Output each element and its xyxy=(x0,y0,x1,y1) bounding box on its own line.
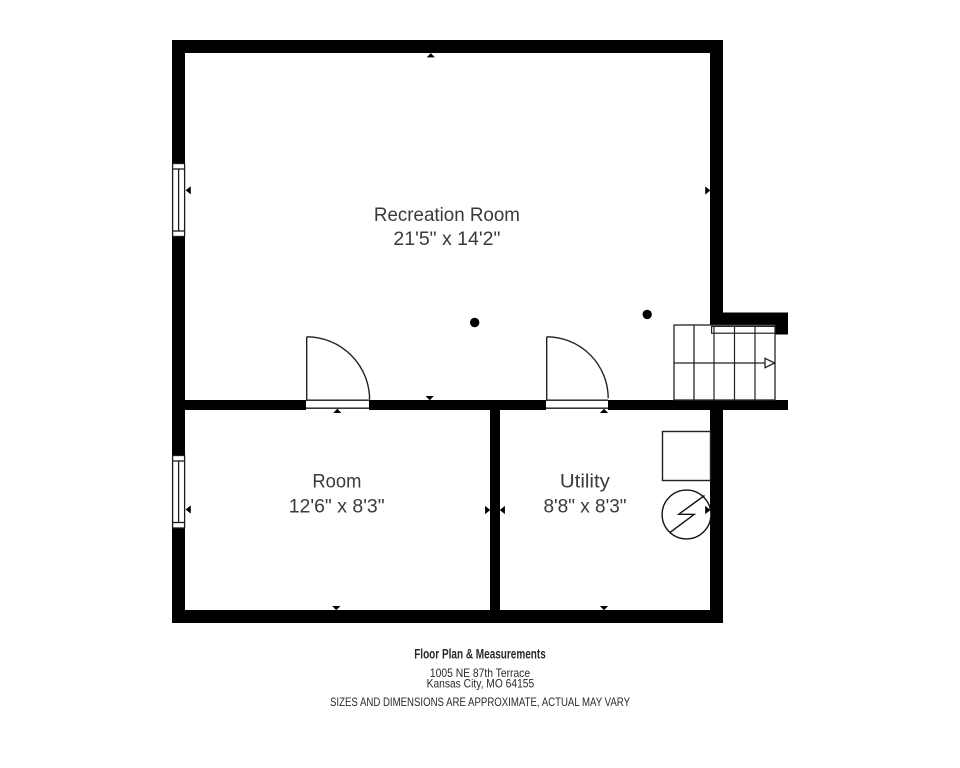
svg-text:Kansas City, MO 64155: Kansas City, MO 64155 xyxy=(427,677,535,691)
svg-text:Utility: Utility xyxy=(560,470,610,492)
svg-text:Recreation Room: Recreation Room xyxy=(374,204,520,226)
svg-text:SIZES AND DIMENSIONS ARE APPRO: SIZES AND DIMENSIONS ARE APPROXIMATE, AC… xyxy=(330,695,630,709)
svg-text:8'8" x 8'3": 8'8" x 8'3" xyxy=(544,496,627,518)
svg-text:12'6" x 8'3": 12'6" x 8'3" xyxy=(289,496,385,518)
svg-text:Room: Room xyxy=(312,470,361,492)
svg-text:21'5" x 14'2": 21'5" x 14'2" xyxy=(393,228,500,250)
svg-text:Floor Plan & Measurements: Floor Plan & Measurements xyxy=(414,647,546,663)
